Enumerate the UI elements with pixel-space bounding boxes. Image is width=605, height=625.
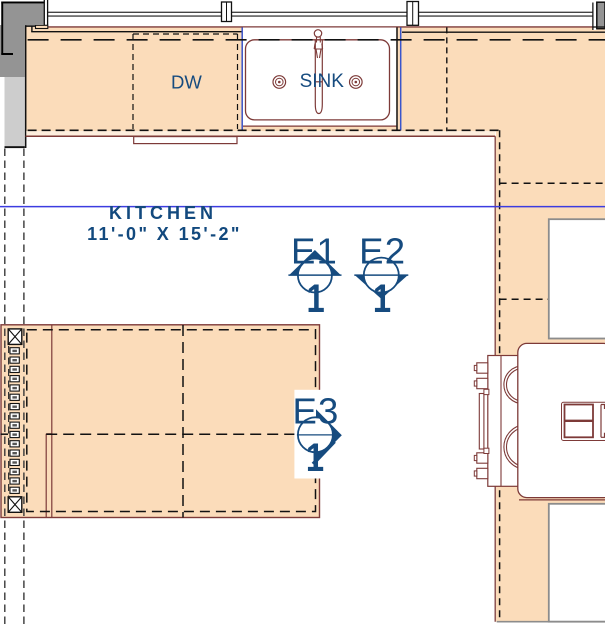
svg-text:1: 1 [373, 276, 391, 321]
svg-text:E2: E2 [359, 230, 406, 271]
svg-text:KITCHEN: KITCHEN [109, 203, 217, 223]
svg-text:11'-0" X 15'-2": 11'-0" X 15'-2" [87, 224, 242, 244]
svg-text:E3: E3 [292, 391, 339, 432]
svg-text:1: 1 [306, 435, 324, 480]
svg-text:E1: E1 [291, 230, 338, 271]
svg-text:DW: DW [171, 72, 202, 93]
svg-text:SINK: SINK [300, 71, 345, 92]
svg-text:1: 1 [306, 276, 324, 321]
